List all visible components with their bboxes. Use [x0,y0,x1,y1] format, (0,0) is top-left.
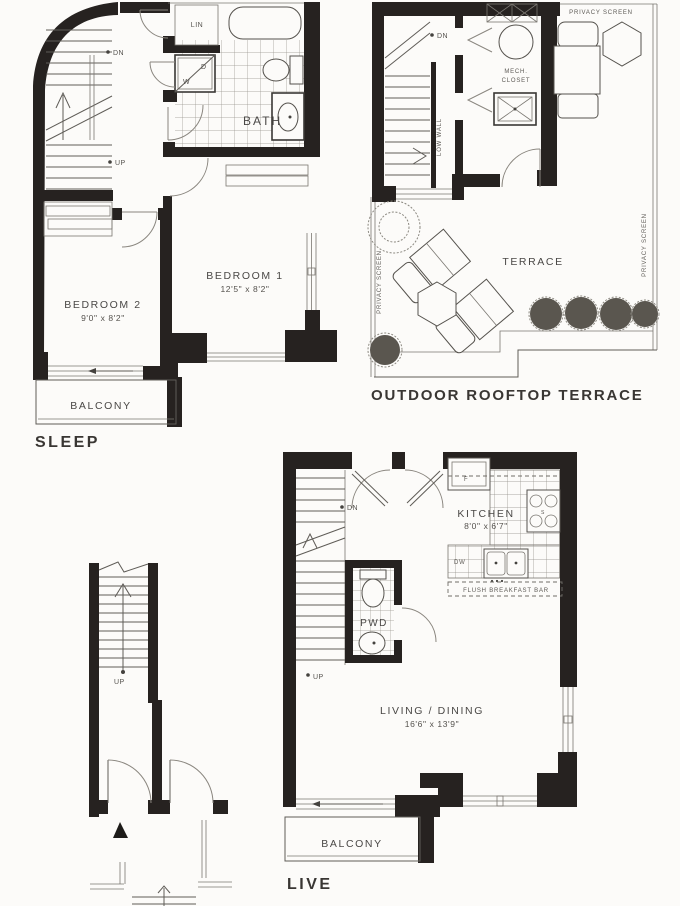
breakfast-bar-label: FLUSH BREAKFAST BAR [463,588,549,594]
bedroom2-label: BEDROOM 2 [64,299,141,311]
living-window-bottom [463,796,537,806]
live-top-wall [288,452,352,469]
bedroom1-window-right [305,233,320,310]
sleep-stairs [46,30,112,189]
sleep-plan: DN UP LIN D W BATH [33,2,337,451]
terrace-plan: DN LOW WALL MECH. CLOSET [368,2,659,404]
bedroom2-closet [44,202,112,236]
living-dining-dims: 16'6" x 13'9" [405,719,459,729]
tree [368,201,420,253]
lounge-chair-upper [554,22,600,118]
kitchen-sink [484,549,528,582]
shrub-row [529,296,659,331]
bedroom2-sliding-door [48,366,143,376]
entry-up-label: UP [114,679,125,686]
sleep-title: SLEEP [35,434,100,451]
bedroom1-window-bottom [207,353,285,361]
stove-label: S [541,510,545,516]
kitchen-dims: 8'0" x 6'7" [464,521,508,531]
live-entry-doors [352,470,443,508]
terrace-dn-label: DN [437,33,448,40]
bedroom1-closet [226,165,308,175]
toilet [263,56,303,84]
floorplan-drawing: DN UP LIN D W BATH [0,0,680,906]
lin-label: LIN [191,22,203,29]
dishwasher-label: DW [454,560,466,566]
unit-below-partial [90,820,232,906]
dryer-label: D [201,64,207,71]
mech-closet-label-1: MECH. [504,69,527,75]
bath-bedroom1-wall [168,147,320,157]
entry-stairwell: UP [89,562,232,906]
kitchen-label: KITCHEN [457,508,514,520]
bath-label: BATH [243,114,282,128]
mech-closet-label-2: CLOSET [502,78,531,84]
terrace-door [502,149,540,187]
sleep-up-label: UP [115,160,126,167]
living-window-right [560,687,577,752]
washer-label: W [183,79,190,86]
pwd-toilet-tank [360,570,386,579]
terrace-window [396,189,452,199]
sleep-top-wall [120,2,170,13]
bedroom-divider-wall [160,213,172,363]
bathtub [229,7,301,39]
sleep-balcony: BALCONY [36,380,176,424]
entry-stairs [99,562,148,674]
live-dn-label: DN [347,505,358,512]
shrub-left [368,333,402,367]
pwd-toilet [362,579,384,607]
privacy-screen-left-label: PRIVACY SCREEN [377,250,383,314]
live-balcony: BALCONY [285,817,420,861]
live-left-wall [283,452,296,807]
pwd-sink [359,632,385,654]
sleep-balcony-label: BALCONY [70,400,131,412]
privacy-screen-right-label: PRIVACY SCREEN [642,213,648,277]
side-table-hexagon [603,22,641,66]
terrace-stairs [385,22,434,175]
bedroom1-label: BEDROOM 1 [206,270,283,282]
lin-closet-wall [163,45,220,53]
live-balcony-label: BALCONY [321,838,382,850]
live-title: LIVE [287,876,333,893]
terrace-title: OUTDOOR ROOFTOP TERRACE [371,387,644,404]
floorplan-page: DN UP LIN D W BATH [0,0,680,906]
water-tank [499,25,533,59]
privacy-screen-top-label: PRIVACY SCREEN [569,10,633,16]
live-right-wall [560,452,577,687]
bedroom1-dims: 12'5" x 8'2" [220,284,269,294]
powder-room: PWD [345,560,436,663]
live-sliding-door [296,799,395,809]
live-up-label: UP [313,674,324,681]
sleep-right-wall-top [304,2,320,152]
low-wall-label: LOW WALL [437,118,443,156]
terrace-label: TERRACE [502,256,563,268]
entry-left-wall [89,563,99,817]
pwd-label: PWD [360,618,388,629]
stove: S [527,490,560,532]
sleep-dn-label: DN [113,50,124,57]
bedroom2-dims: 9'0" x 8'2" [81,313,125,323]
low-wall [431,62,436,188]
entry-marker-triangle [113,822,128,838]
fridge [448,458,490,490]
mech-closet: MECH. CLOSET [468,4,537,125]
living-dining-label: LIVING / DINING [380,705,484,717]
fridge-label: F [464,477,468,483]
live-plan: BALCONY DN UP [283,452,577,893]
washer-dryer: D W [175,55,215,92]
live-stairs [296,470,345,677]
